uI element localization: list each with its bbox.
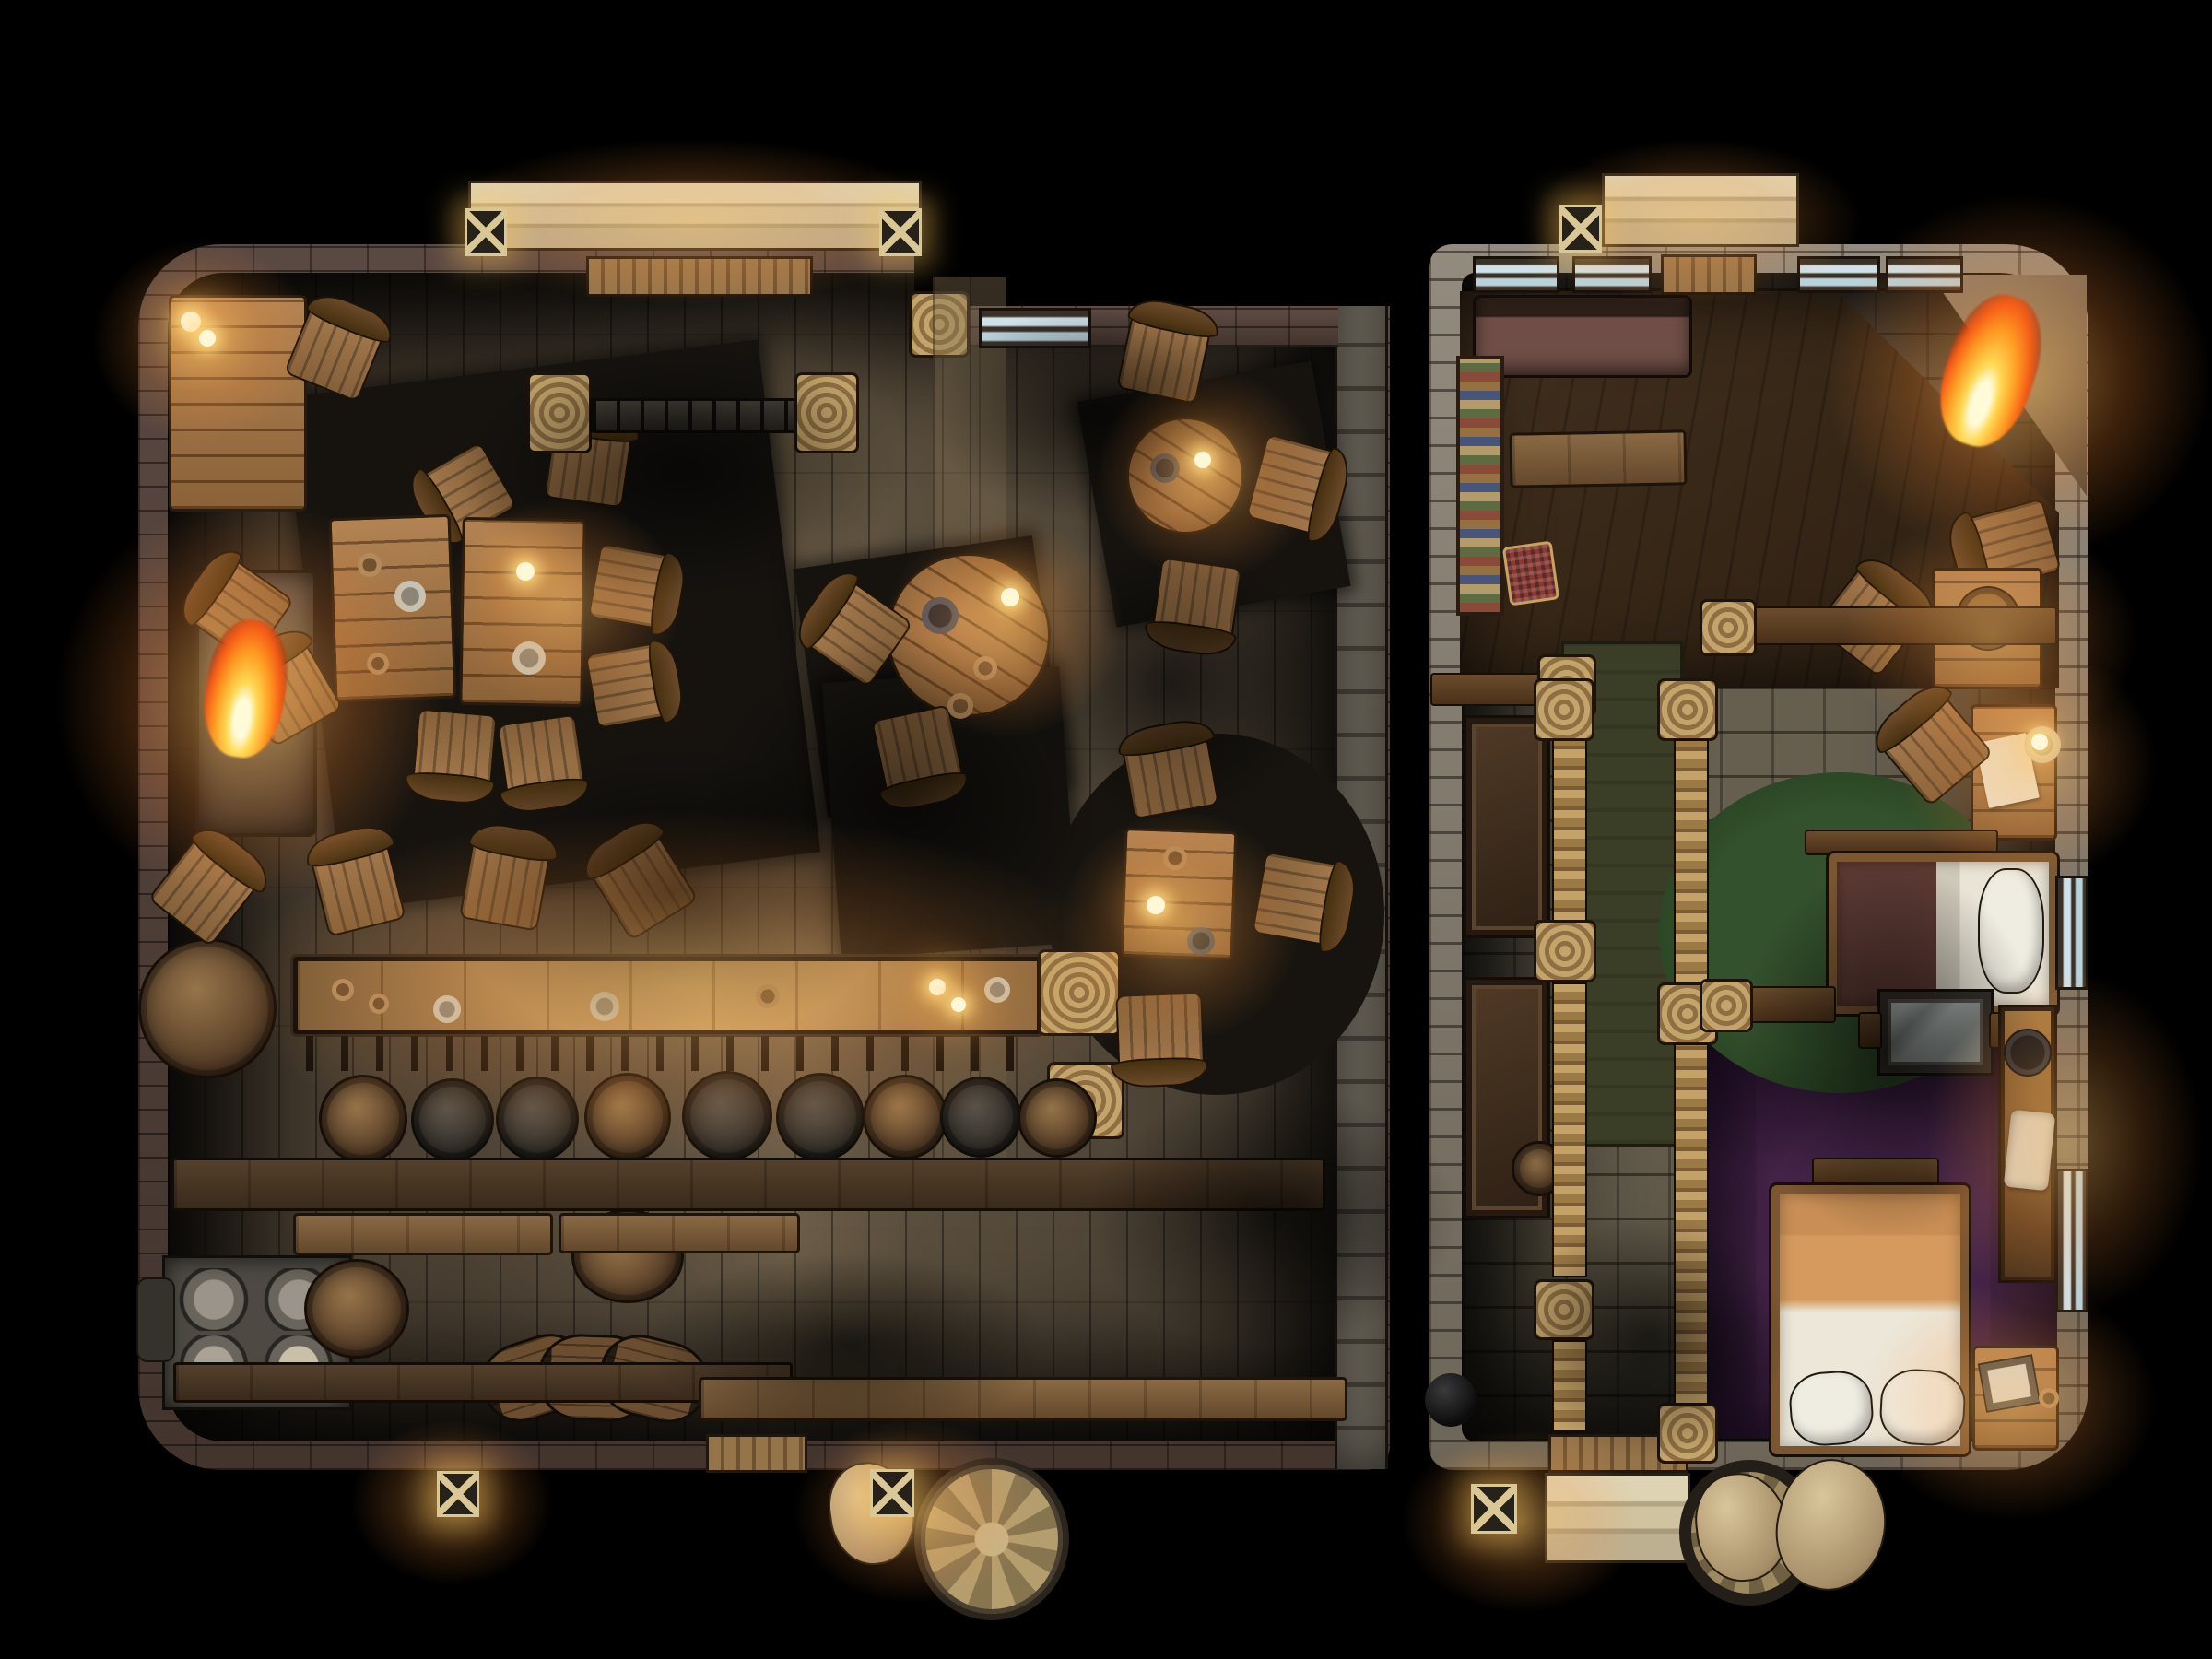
lantern-post <box>1559 205 1602 253</box>
light-pool-porch-north <box>433 138 949 304</box>
lantern-post <box>1471 1484 1517 1534</box>
light-pool-nightstand <box>1862 1281 2157 1521</box>
candle <box>951 997 966 1012</box>
furniture-layer <box>0 0 2212 1659</box>
light-pool-door <box>1401 1429 1641 1613</box>
candle <box>1001 588 1019 606</box>
wall-post <box>1534 678 1594 741</box>
closet-cabinet <box>1464 715 1550 938</box>
candle <box>516 562 535 581</box>
light-pool-dining <box>442 498 682 710</box>
lounge-bench <box>1509 429 1687 488</box>
light-pool-table <box>885 516 1124 737</box>
lantern-post <box>879 208 922 256</box>
bookshelf <box>1456 356 1504 616</box>
corridor-wall-west <box>1552 715 1587 922</box>
wall-post <box>1534 920 1596 982</box>
candle <box>1147 896 1165 914</box>
lantern-post <box>437 1471 479 1517</box>
half-barrel <box>304 1259 409 1359</box>
map-canvas[interactable] <box>0 0 2212 1659</box>
kitchen-bench <box>293 1213 553 1255</box>
candle <box>199 330 216 347</box>
light-pool-desk <box>1899 645 2157 885</box>
lounge-sofa <box>1473 295 1692 378</box>
light-pool-table <box>1060 811 1300 1041</box>
wall-post <box>1700 599 1757 656</box>
candle <box>2031 734 2048 750</box>
light-pool-table <box>1097 369 1318 581</box>
lantern-post <box>870 1469 914 1517</box>
candle <box>1194 452 1211 468</box>
light-pool-dresser <box>1926 968 2203 1318</box>
stove-pipe <box>136 1277 175 1362</box>
woven-stool <box>1502 541 1559 606</box>
candle <box>929 979 946 995</box>
lantern-post <box>465 208 507 256</box>
wall-post <box>1657 678 1718 741</box>
candle <box>181 312 201 332</box>
